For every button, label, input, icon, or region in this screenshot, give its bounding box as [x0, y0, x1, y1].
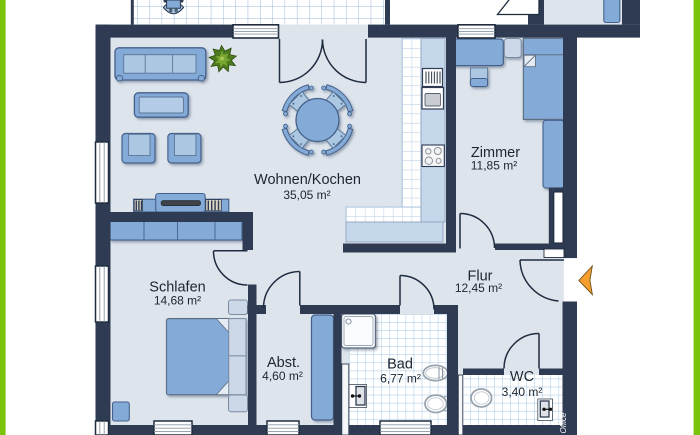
svg-text:3,40 m²: 3,40 m² — [502, 385, 543, 399]
svg-text:Office: Office — [559, 412, 568, 433]
svg-text:Wohnen/Kochen: Wohnen/Kochen — [254, 172, 361, 188]
svg-text:6,77 m²: 6,77 m² — [380, 372, 421, 386]
svg-text:35,05 m²: 35,05 m² — [283, 188, 330, 202]
svg-text:4,60 m²: 4,60 m² — [262, 369, 303, 383]
svg-text:11,85 m²: 11,85 m² — [471, 159, 517, 173]
svg-text:WC: WC — [510, 369, 534, 385]
svg-text:14,68 m²: 14,68 m² — [154, 294, 201, 308]
svg-text:Bad: Bad — [387, 357, 413, 373]
svg-text:12,45 m²: 12,45 m² — [455, 281, 502, 295]
